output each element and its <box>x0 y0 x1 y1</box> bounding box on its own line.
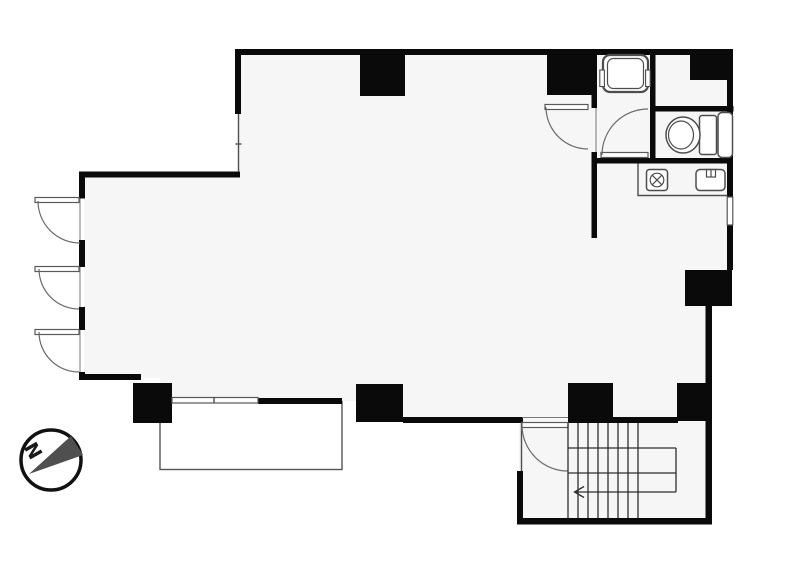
wall-bottom-mid <box>403 417 523 423</box>
wall-left-seg3 <box>79 307 85 330</box>
compass-north-arrow: N <box>21 430 83 490</box>
door-swing-arc <box>39 269 79 309</box>
door-leaf <box>35 267 79 272</box>
sink-icon <box>696 170 725 191</box>
bathtub-icon <box>600 55 650 92</box>
wall-stair-bottom <box>517 518 712 525</box>
wall-bath-left-lower <box>592 152 598 164</box>
wall-bottom-mid2 <box>613 417 678 423</box>
door-left-1 <box>35 198 80 244</box>
toilet-tank <box>700 116 717 155</box>
door-left-2 <box>35 267 79 310</box>
bathtub-tab-left <box>600 70 605 87</box>
balcony <box>160 402 342 470</box>
column-a <box>133 383 172 423</box>
door-leaf <box>522 423 568 428</box>
wall-top <box>235 49 733 55</box>
wall-right-upper-b <box>727 225 733 270</box>
wall-topright-block <box>690 52 733 80</box>
door-left-3 <box>35 330 79 373</box>
column-c <box>568 383 613 423</box>
wall-bottom-window-right <box>258 398 342 404</box>
door-leaf <box>35 198 79 203</box>
wall-toilet-top <box>656 106 734 112</box>
wall-right-lower <box>706 305 713 524</box>
column-d <box>677 383 709 421</box>
toilet-icon <box>666 113 733 158</box>
toilet-bowl <box>666 117 700 153</box>
column-b <box>356 384 403 422</box>
wall-bottom-left <box>79 374 141 380</box>
door-leaf <box>545 105 588 110</box>
wall-bath-left-upper <box>592 52 598 108</box>
wall-bath-divider <box>650 52 656 164</box>
column-bath-left <box>547 52 597 95</box>
wall-under-bath <box>597 158 733 164</box>
door-swing-arc <box>39 332 79 372</box>
door-swing-arc <box>38 201 80 243</box>
floor-plan: N <box>0 0 787 570</box>
column-e <box>685 270 732 306</box>
window-right <box>727 197 733 225</box>
toilet-back-unit <box>718 113 733 158</box>
wall-left-seg1 <box>79 172 85 199</box>
stove-icon <box>647 170 668 191</box>
wall-upperleft-vertical <box>235 49 241 114</box>
window-bottom <box>172 398 258 404</box>
wall-step-horizontal <box>79 172 240 178</box>
door-leaf <box>35 330 79 335</box>
wall-left-seg2 <box>79 240 85 267</box>
bathtub-tab-right <box>646 70 651 87</box>
floor-plan-page: N <box>0 0 787 570</box>
wall-stair-left <box>517 471 523 524</box>
wall-corridor <box>592 163 598 238</box>
column-top-mid <box>360 52 405 96</box>
door-leaf <box>601 153 648 158</box>
